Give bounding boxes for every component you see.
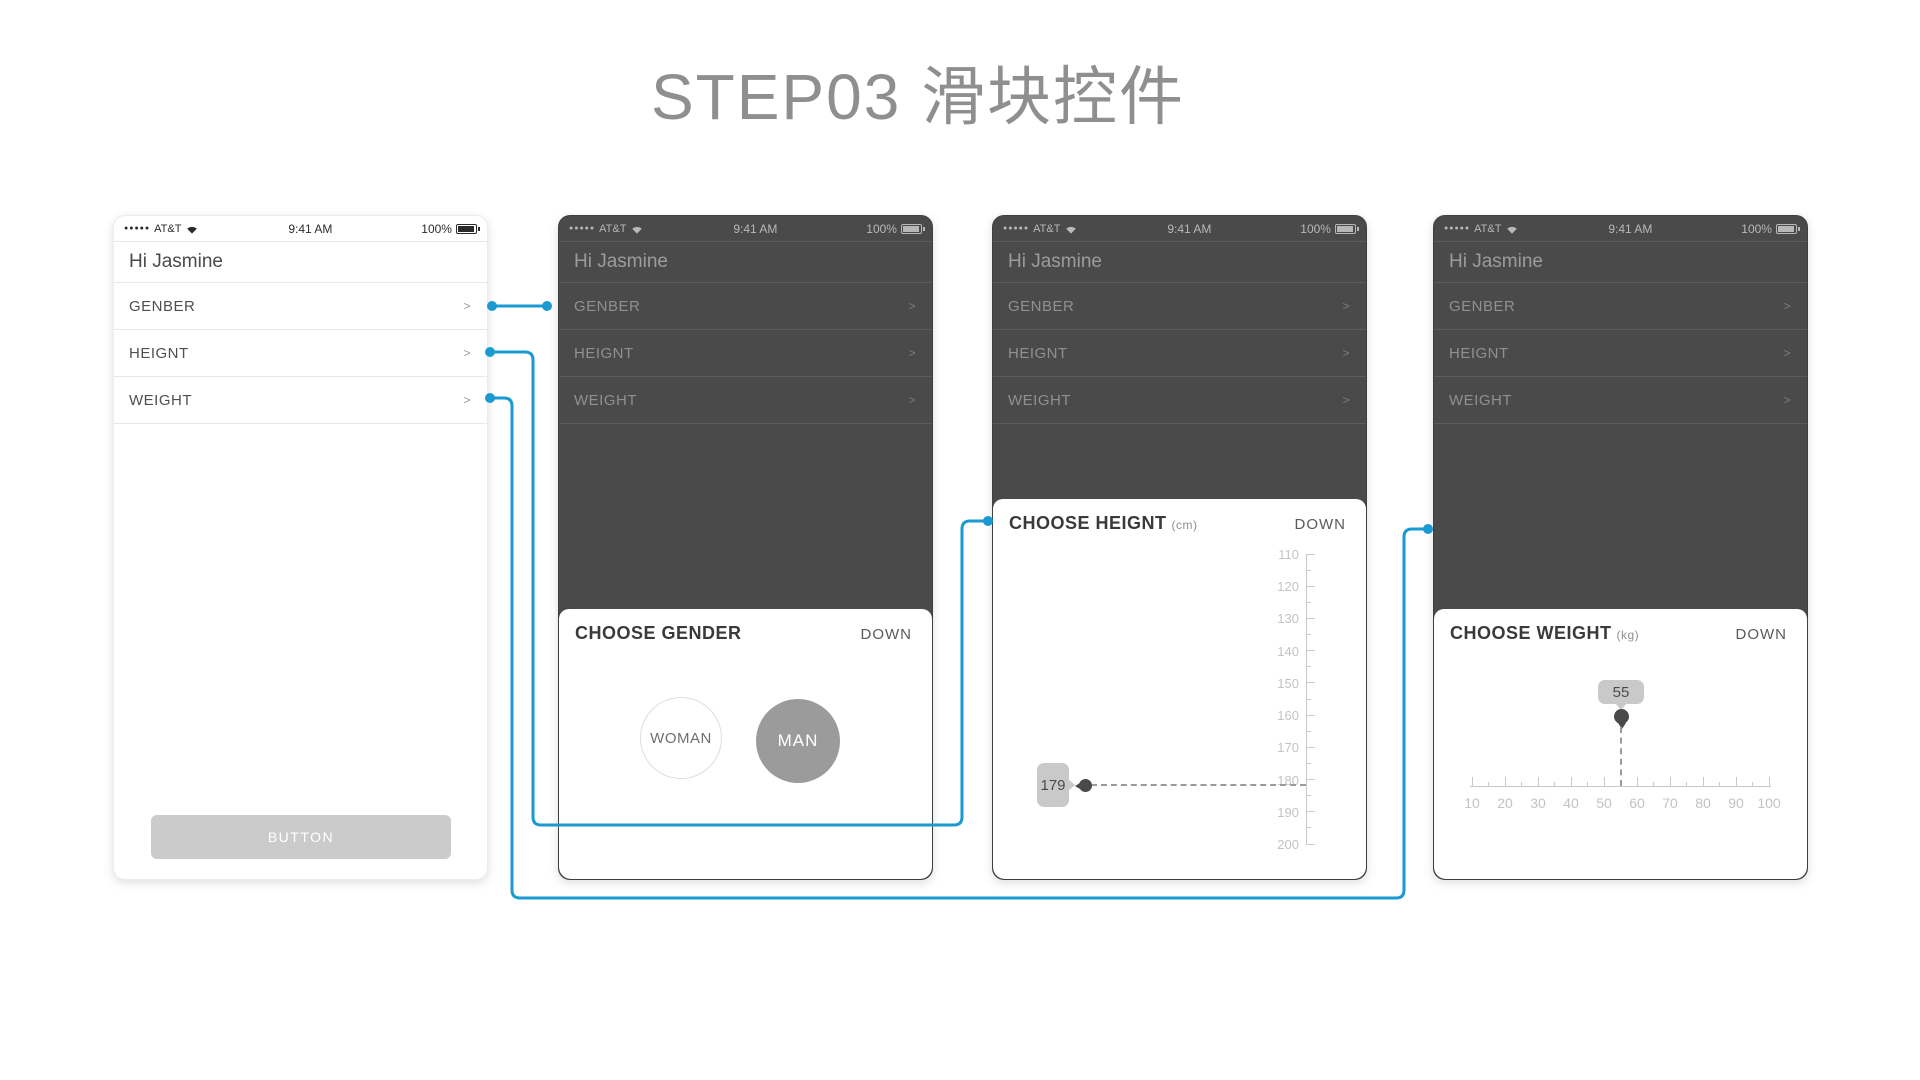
chevron-right-icon: > bbox=[908, 299, 916, 313]
chevron-right-icon: > bbox=[463, 346, 471, 360]
phone-screen-weight: ●●●●● AT&T 9:41 AM 100% Hi Jasmine GENBE… bbox=[1433, 215, 1808, 880]
unit-label: (cm) bbox=[1172, 518, 1198, 532]
down-button[interactable]: DOWN bbox=[1295, 516, 1347, 533]
list-item-weight[interactable]: WEIGHT> bbox=[114, 377, 487, 424]
menu-list-dimmed: GENBER>HEIGNT>WEIGHT> bbox=[993, 283, 1366, 424]
chevron-right-icon: > bbox=[1783, 393, 1791, 407]
ruler-major-tick bbox=[1505, 777, 1506, 786]
chevron-right-icon: > bbox=[908, 393, 916, 407]
weight-value-badge[interactable]: 55 bbox=[1598, 680, 1644, 704]
ruler-major-tick bbox=[1604, 777, 1605, 786]
ruler-minor-tick bbox=[1587, 782, 1588, 786]
height-slider-handle[interactable] bbox=[1079, 779, 1092, 792]
gender-option-man[interactable]: MAN bbox=[756, 699, 840, 783]
down-button[interactable]: DOWN bbox=[861, 626, 913, 643]
carrier-label: AT&T bbox=[1033, 223, 1060, 235]
list-item-label: GENBER bbox=[1008, 298, 1074, 315]
ruler-tick-label: 200 bbox=[1259, 837, 1299, 852]
ruler-tick-label: 190 bbox=[1259, 805, 1299, 820]
battery-icon bbox=[1776, 224, 1797, 234]
ruler-minor-tick bbox=[1306, 763, 1311, 764]
wifi-icon bbox=[185, 224, 199, 234]
ruler-major-tick bbox=[1703, 777, 1704, 786]
ruler-major-tick bbox=[1769, 777, 1770, 786]
list-item-genber[interactable]: GENBER> bbox=[114, 283, 487, 330]
sheet-title: CHOOSE WEIGHT(kg) bbox=[1450, 623, 1639, 644]
chevron-right-icon: > bbox=[1783, 346, 1791, 360]
chevron-right-icon: > bbox=[463, 393, 471, 407]
down-button[interactable]: DOWN bbox=[1736, 626, 1788, 643]
list-item-label: GENBER bbox=[1449, 298, 1515, 315]
list-item-label: GENBER bbox=[129, 298, 195, 315]
battery-percent-label: 100% bbox=[1741, 222, 1772, 236]
height-value-badge[interactable]: 179 bbox=[1037, 763, 1069, 807]
battery-icon bbox=[1335, 224, 1356, 234]
ruler-major-tick bbox=[1472, 777, 1473, 786]
phone-screen-home: ●●●●● AT&T 9:41 AM 100% Hi Jasmine GENBE… bbox=[113, 215, 488, 880]
greeting-label: Hi Jasmine bbox=[559, 242, 932, 283]
list-item-heignt[interactable]: HEIGNT> bbox=[993, 330, 1366, 377]
height-dashed-line bbox=[1091, 784, 1306, 786]
list-item-heignt[interactable]: HEIGNT> bbox=[1434, 330, 1807, 377]
chevron-right-icon: > bbox=[908, 346, 916, 360]
greeting-label: Hi Jasmine bbox=[114, 242, 487, 283]
carrier-label: AT&T bbox=[1474, 223, 1501, 235]
height-bottom-sheet: CHOOSE HEIGNT(cm) DOWN 11012013014015016… bbox=[993, 499, 1366, 879]
menu-list-dimmed: GENBER>HEIGNT>WEIGHT> bbox=[1434, 283, 1807, 424]
ruler-minor-tick bbox=[1306, 570, 1311, 571]
connector-dot bbox=[1423, 524, 1433, 534]
list-item-label: HEIGNT bbox=[1449, 345, 1509, 362]
chevron-right-icon: > bbox=[1342, 299, 1350, 313]
chevron-right-icon: > bbox=[1342, 393, 1350, 407]
list-item-weight[interactable]: WEIGHT> bbox=[559, 377, 932, 424]
ruler-tick-label: 110 bbox=[1259, 547, 1299, 562]
gender-option-label: WOMAN bbox=[650, 730, 712, 747]
ruler-tick-label: 120 bbox=[1259, 579, 1299, 594]
list-item-genber[interactable]: GENBER> bbox=[559, 283, 932, 330]
battery-icon bbox=[901, 224, 922, 234]
ruler-major-tick bbox=[1571, 777, 1572, 786]
ruler-minor-tick bbox=[1306, 731, 1311, 732]
ruler-tick-label: 100 bbox=[1749, 795, 1789, 811]
signal-dots-icon: ●●●●● bbox=[1444, 225, 1470, 232]
list-item-label: WEIGHT bbox=[1008, 392, 1071, 409]
battery-percent-label: 100% bbox=[1300, 222, 1331, 236]
ruler-minor-tick bbox=[1488, 782, 1489, 786]
chevron-right-icon: > bbox=[1783, 299, 1791, 313]
page-title: STEP03 滑块控件 bbox=[0, 46, 1836, 138]
ruler-minor-tick bbox=[1686, 782, 1687, 786]
ruler-minor-tick bbox=[1306, 634, 1311, 635]
ruler-minor-tick bbox=[1306, 795, 1311, 796]
ruler-minor-tick bbox=[1653, 782, 1654, 786]
list-item-heignt[interactable]: HEIGNT> bbox=[559, 330, 932, 377]
list-item-label: GENBER bbox=[574, 298, 640, 315]
chevron-right-icon: > bbox=[1342, 346, 1350, 360]
status-bar: ●●●●● AT&T 9:41 AM 100% bbox=[993, 216, 1366, 242]
ruler-minor-tick bbox=[1521, 782, 1522, 786]
sheet-title: CHOOSE HEIGNT(cm) bbox=[1009, 513, 1198, 534]
submit-button[interactable]: BUTTON bbox=[151, 815, 451, 859]
ruler-tick-label: 130 bbox=[1259, 611, 1299, 626]
carrier-label: AT&T bbox=[599, 223, 626, 235]
list-item-weight[interactable]: WEIGHT> bbox=[993, 377, 1366, 424]
wifi-icon bbox=[630, 224, 644, 234]
greeting-label: Hi Jasmine bbox=[993, 242, 1366, 283]
gender-bottom-sheet: CHOOSE GENDER DOWN WOMAN MAN bbox=[559, 609, 932, 879]
status-bar: ●●●●● AT&T 9:41 AM 100% bbox=[1434, 216, 1807, 242]
unit-label: (kg) bbox=[1617, 628, 1640, 642]
weight-dashed-line bbox=[1620, 727, 1622, 786]
ruler-tick-label: 170 bbox=[1259, 740, 1299, 755]
status-bar: ●●●●● AT&T 9:41 AM 100% bbox=[559, 216, 932, 242]
battery-percent-label: 100% bbox=[866, 222, 897, 236]
ruler-minor-tick bbox=[1306, 827, 1311, 828]
phone-screen-gender: ●●●●● AT&T 9:41 AM 100% Hi Jasmine GENBE… bbox=[558, 215, 933, 880]
signal-dots-icon: ●●●●● bbox=[124, 225, 150, 232]
clock-label: 9:41 AM bbox=[288, 222, 332, 236]
clock-label: 9:41 AM bbox=[1608, 222, 1652, 236]
phone-screen-height: ●●●●● AT&T 9:41 AM 100% Hi Jasmine GENBE… bbox=[992, 215, 1367, 880]
ruler-major-tick bbox=[1306, 650, 1315, 651]
ruler-minor-tick bbox=[1752, 782, 1753, 786]
list-item-weight[interactable]: WEIGHT> bbox=[1434, 377, 1807, 424]
list-item-genber[interactable]: GENBER> bbox=[993, 283, 1366, 330]
ruler-major-tick bbox=[1306, 811, 1315, 812]
list-item-genber[interactable]: GENBER> bbox=[1434, 283, 1807, 330]
list-item-label: WEIGHT bbox=[574, 392, 637, 409]
list-item-label: HEIGNT bbox=[574, 345, 634, 362]
connector-dot bbox=[542, 301, 552, 311]
ruler-tick-label: 160 bbox=[1259, 708, 1299, 723]
ruler-major-tick bbox=[1306, 747, 1315, 748]
battery-percent-label: 100% bbox=[421, 222, 452, 236]
carrier-label: AT&T bbox=[154, 223, 181, 235]
ruler-minor-tick bbox=[1306, 666, 1311, 667]
ruler-major-tick bbox=[1306, 779, 1315, 780]
signal-dots-icon: ●●●●● bbox=[569, 225, 595, 232]
list-item-label: WEIGHT bbox=[129, 392, 192, 409]
ruler-tick-label: 140 bbox=[1259, 644, 1299, 659]
menu-list-dimmed: GENBER>HEIGNT>WEIGHT> bbox=[559, 283, 932, 424]
list-item-label: WEIGHT bbox=[1449, 392, 1512, 409]
ruler-minor-tick bbox=[1719, 782, 1720, 786]
ruler-major-tick bbox=[1306, 844, 1315, 845]
weight-bottom-sheet: CHOOSE WEIGHT(kg) DOWN 10203040506070809… bbox=[1434, 609, 1807, 879]
ruler-major-tick bbox=[1538, 777, 1539, 786]
ruler-minor-tick bbox=[1306, 602, 1311, 603]
wifi-icon bbox=[1505, 224, 1519, 234]
list-item-label: HEIGNT bbox=[1008, 345, 1068, 362]
chevron-right-icon: > bbox=[463, 299, 471, 313]
clock-label: 9:41 AM bbox=[1167, 222, 1211, 236]
gender-option-label: MAN bbox=[778, 731, 819, 751]
list-item-heignt[interactable]: HEIGNT> bbox=[114, 330, 487, 377]
ruler-major-tick bbox=[1306, 618, 1315, 619]
weight-slider-handle[interactable] bbox=[1614, 709, 1629, 724]
gender-option-woman[interactable]: WOMAN bbox=[640, 697, 722, 779]
ruler-major-tick bbox=[1306, 554, 1315, 555]
ruler-minor-tick bbox=[1554, 782, 1555, 786]
signal-dots-icon: ●●●●● bbox=[1003, 225, 1029, 232]
ruler-minor-tick bbox=[1306, 699, 1311, 700]
connector-dot bbox=[487, 301, 497, 311]
ruler-major-tick bbox=[1306, 682, 1315, 683]
ruler-tick-label: 150 bbox=[1259, 676, 1299, 691]
wifi-icon bbox=[1064, 224, 1078, 234]
menu-list: GENBER>HEIGNT>WEIGHT> bbox=[114, 283, 487, 424]
ruler-major-tick bbox=[1736, 777, 1737, 786]
greeting-label: Hi Jasmine bbox=[1434, 242, 1807, 283]
battery-icon bbox=[456, 224, 477, 234]
ruler-major-tick bbox=[1670, 777, 1671, 786]
ruler-major-tick bbox=[1306, 586, 1315, 587]
sheet-title: CHOOSE GENDER bbox=[575, 623, 742, 644]
clock-label: 9:41 AM bbox=[733, 222, 777, 236]
status-bar: ●●●●● AT&T 9:41 AM 100% bbox=[114, 216, 487, 242]
ruler-major-tick bbox=[1637, 777, 1638, 786]
ruler-major-tick bbox=[1306, 715, 1315, 716]
list-item-label: HEIGNT bbox=[129, 345, 189, 362]
